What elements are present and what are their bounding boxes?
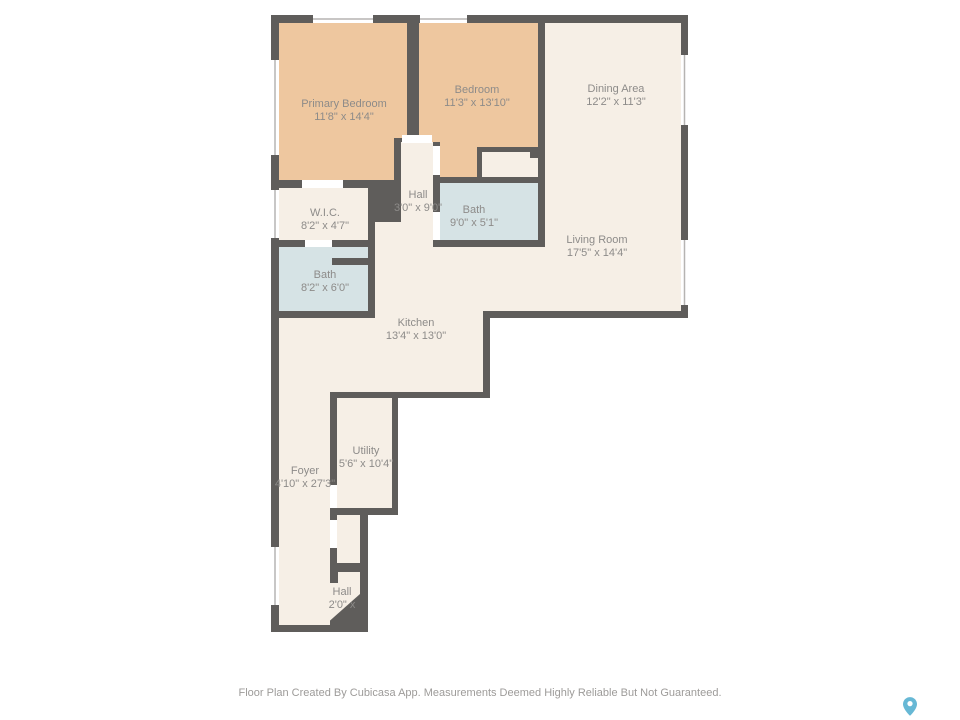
corridor-lower-floor	[337, 515, 360, 563]
corridor-mid-floor	[375, 222, 401, 318]
room-name: Dining Area	[588, 83, 645, 95]
room-dims: 9'0" x 5'1"	[450, 217, 498, 230]
room-label-bath-lower: Bath 8'2" x 6'0"	[301, 269, 349, 295]
floor-plan-page: Primary Bedroom 11'8" x 14'4" Bedroom 11…	[0, 0, 960, 720]
room-dims: 11'3" x 13'10"	[444, 97, 510, 110]
room-label-utility: Utility 5'6" x 10'4"	[339, 445, 393, 471]
room-dims: 8'2" x 6'0"	[301, 282, 349, 295]
door-bath-upper	[433, 212, 440, 240]
room-label-kitchen: Kitchen 13'4" x 13'0"	[386, 317, 446, 343]
room-label-bedroom: Bedroom 11'3" x 13'10"	[444, 84, 510, 110]
room-dims: 4'10" x 27'3"	[275, 478, 335, 491]
closet-wall-stub	[530, 148, 538, 158]
room-dims: 17'5" x 14'4"	[566, 247, 627, 260]
room-name: Hall	[333, 586, 352, 598]
room-label-wic: W.I.C. 8'2" x 4'7"	[301, 207, 349, 233]
room-label-living-room: Living Room 17'5" x 14'4"	[566, 234, 627, 260]
room-dims: 11'8" x 14'4"	[301, 111, 387, 124]
room-name: Bath	[463, 204, 486, 216]
brand-pin-icon	[903, 697, 917, 716]
pin-hole	[907, 701, 912, 706]
bath-lower-wall-stub	[332, 258, 368, 265]
door-wic-to-bath	[305, 240, 332, 247]
pin-body	[903, 697, 917, 716]
hall-lower-wall-stub	[330, 563, 338, 583]
room-name: Utility	[353, 445, 380, 457]
room-name: Foyer	[291, 465, 319, 477]
room-label-bath-upper: Bath 9'0" x 5'1"	[450, 204, 498, 230]
disclaimer-text: Floor Plan Created By Cubicasa App. Meas…	[0, 687, 960, 699]
door-bedroom	[433, 146, 440, 175]
room-name: Primary Bedroom	[301, 98, 387, 110]
closet-floor	[482, 152, 538, 177]
room-name: Hall	[409, 189, 428, 201]
room-label-dining-area: Dining Area 12'2" x 11'3"	[586, 83, 646, 109]
room-name: Bath	[314, 269, 337, 281]
door-corridor-lower	[330, 520, 337, 548]
door-hall-top	[402, 135, 432, 143]
room-name: Living Room	[566, 234, 627, 246]
room-dims: 3'0" x 9'0"	[394, 202, 442, 215]
room-dims: 5'6" x 10'4"	[339, 458, 393, 471]
room-name: Bedroom	[455, 84, 500, 96]
hall-upper-floor	[401, 142, 433, 318]
room-label-primary-bedroom: Primary Bedroom 11'8" x 14'4"	[301, 98, 387, 124]
room-name: Kitchen	[398, 317, 435, 329]
room-dims: 2'0" x	[329, 599, 356, 612]
door-primary-to-wic	[302, 180, 343, 188]
room-label-hall-upper: Hall 3'0" x 9'0"	[394, 189, 442, 215]
dining-living-floor	[545, 23, 681, 311]
room-name: W.I.C.	[310, 207, 340, 219]
room-dims: 13'4" x 13'0"	[386, 330, 446, 343]
room-label-hall-lower: Hall 2'0" x	[329, 586, 356, 612]
room-dims: 12'2" x 11'3"	[586, 96, 646, 109]
room-dims: 8'2" x 4'7"	[301, 220, 349, 233]
room-label-foyer: Foyer 4'10" x 27'3"	[275, 465, 335, 491]
closet-wall-top	[477, 147, 538, 152]
open-mid-floor	[433, 247, 545, 311]
